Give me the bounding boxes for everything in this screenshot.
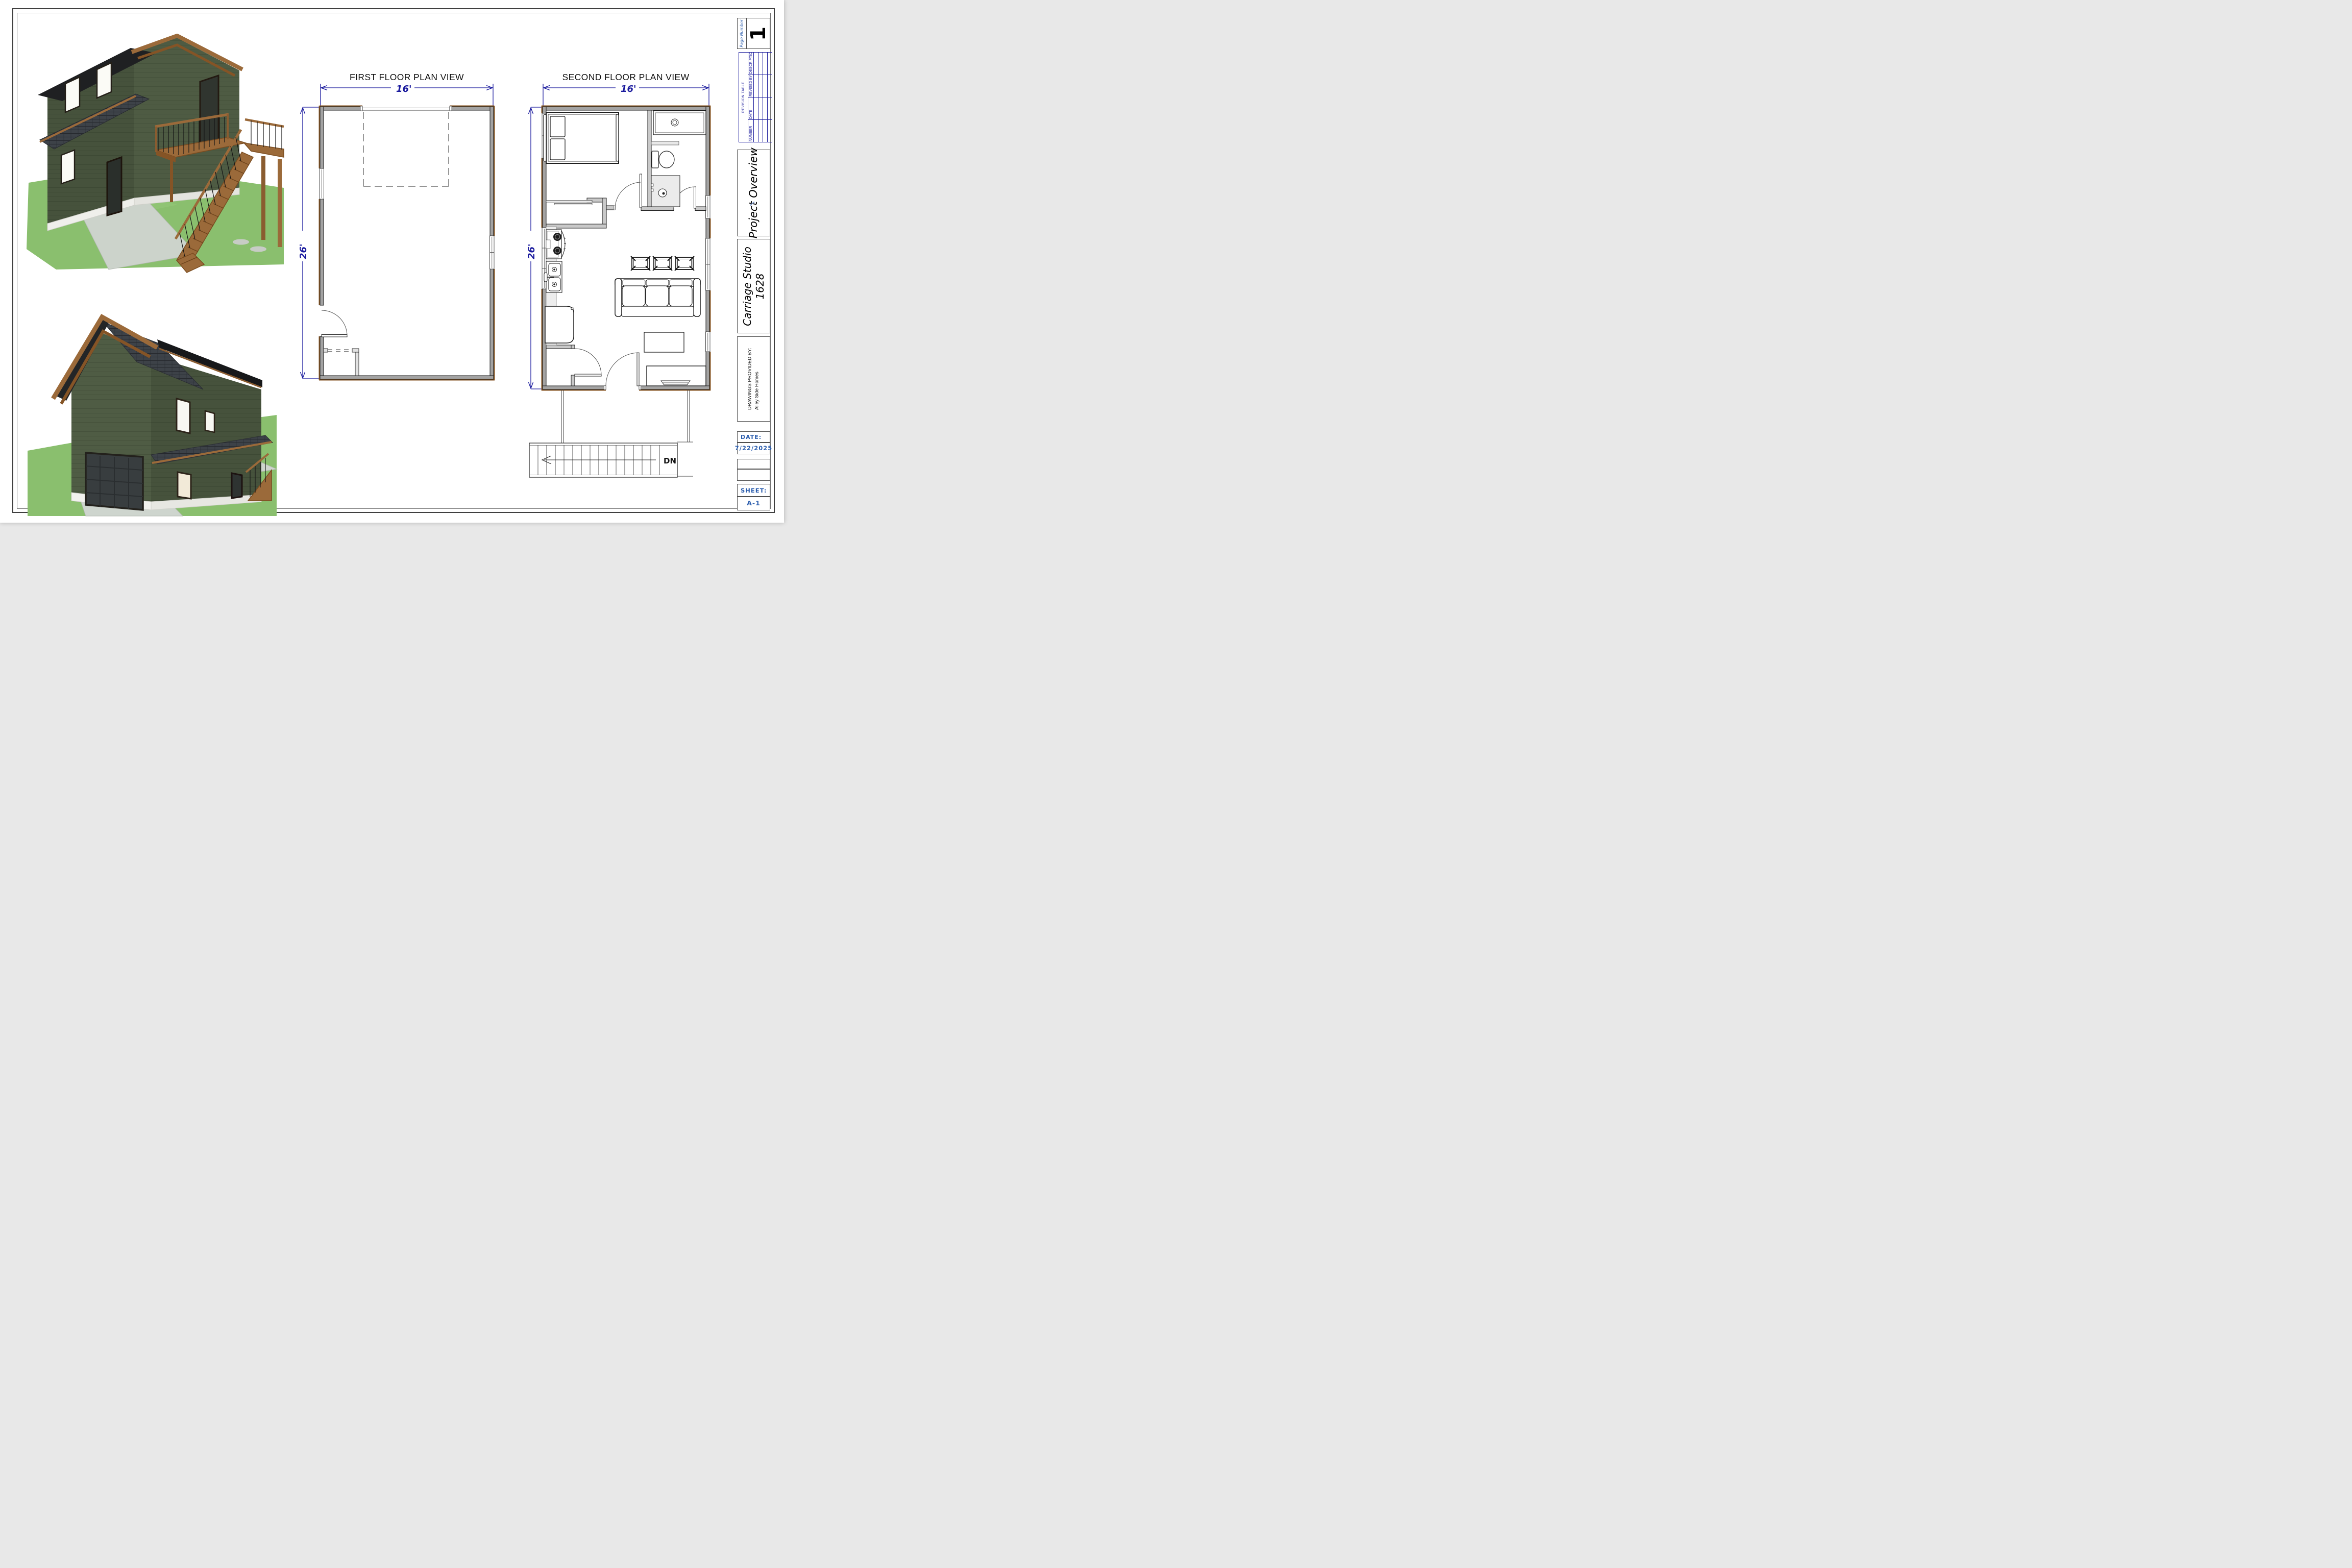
revision-table-title: REVISION TABLE bbox=[739, 53, 748, 142]
window-upper-small bbox=[205, 411, 214, 432]
dim-label-26ft: 26' bbox=[298, 243, 309, 259]
plan-number: 1628 bbox=[754, 247, 767, 326]
plan-name-box: Carriage Studio 1628 bbox=[737, 239, 770, 333]
sheet-box: SHEET: A-1 bbox=[737, 484, 770, 510]
window-upper-2 bbox=[97, 63, 111, 98]
door-jamb bbox=[639, 386, 641, 390]
toilet bbox=[652, 151, 674, 168]
sheet-value: A-1 bbox=[738, 497, 770, 509]
revision-table: REVISION TABLE NUMBER DATE REVISED BY DE… bbox=[739, 52, 769, 142]
bed bbox=[544, 112, 619, 163]
bedroom-door bbox=[615, 174, 642, 209]
project-title-box: Project Overview bbox=[737, 150, 770, 236]
side-tables bbox=[631, 256, 694, 271]
garage-door-symbol bbox=[360, 106, 452, 186]
date-label: DATE: bbox=[738, 432, 770, 443]
dim-label-26ft: 26' bbox=[526, 243, 537, 259]
sofa bbox=[615, 279, 700, 316]
stair-landing bbox=[244, 143, 284, 157]
rev-col-revisedby: REVISED BY bbox=[748, 75, 754, 97]
vanity bbox=[653, 111, 706, 135]
page-number-label: Page Number bbox=[740, 19, 744, 47]
provided-by-value: Alley Side Homes bbox=[754, 348, 761, 410]
coffee-table bbox=[644, 332, 684, 352]
page-number-value: 1 bbox=[747, 27, 770, 41]
exterior-siding-line bbox=[319, 106, 495, 380]
dim-label-16ft: 16' bbox=[621, 84, 636, 94]
window-lower bbox=[178, 472, 191, 499]
interior-closet bbox=[324, 349, 359, 376]
empty-box bbox=[737, 459, 770, 481]
entry-door bbox=[107, 157, 121, 215]
entry-door-symbol bbox=[322, 310, 347, 337]
project-title: Project Overview bbox=[748, 148, 760, 238]
dimension-height bbox=[301, 107, 320, 379]
exterior-rendering-rear bbox=[24, 34, 290, 281]
window-right bbox=[490, 236, 495, 269]
desk bbox=[647, 366, 706, 386]
sheet-label: SHEET: bbox=[738, 484, 770, 497]
rev-col-description: DESCRIPTION bbox=[748, 53, 754, 75]
concrete-pad bbox=[250, 247, 266, 252]
rev-col-date: DATE bbox=[748, 97, 754, 120]
window-left bbox=[320, 168, 324, 199]
shower bbox=[651, 176, 680, 207]
closet-shelf bbox=[546, 201, 592, 205]
exterior-rendering-front bbox=[26, 282, 281, 518]
second-floor-plan: 16' 26' bbox=[514, 69, 729, 485]
refrigerator bbox=[545, 306, 574, 343]
rev-col-number: NUMBER bbox=[748, 120, 754, 142]
plan-name: Carriage Studio bbox=[741, 247, 754, 326]
kitchen-sink bbox=[544, 261, 562, 292]
side-entry-door bbox=[232, 473, 242, 498]
provided-by-box: DRAWINGS PROVIDED BY: Alley Side Homes bbox=[737, 336, 770, 422]
window-lower bbox=[61, 150, 75, 184]
page-number-box: Page Number 1 bbox=[737, 18, 770, 49]
first-floor-plan: 16' 26' bbox=[283, 69, 508, 388]
door-jamb bbox=[604, 386, 606, 390]
date-box: DATE: 7/22/2025 bbox=[737, 431, 770, 454]
concrete-pad bbox=[233, 239, 249, 245]
drawing-sheet: FIRST FLOOR PLAN VIEW SECOND FLOOR PLAN … bbox=[0, 0, 784, 523]
stair-down-label: DN bbox=[664, 456, 676, 465]
window-upper-1 bbox=[65, 77, 80, 112]
deck-entry-door bbox=[606, 353, 639, 386]
bath-shelf bbox=[651, 141, 679, 145]
provided-by-label: DRAWINGS PROVIDED BY: bbox=[746, 348, 753, 410]
window-upper-large bbox=[177, 399, 190, 433]
dim-label-16ft: 16' bbox=[396, 84, 412, 94]
range bbox=[546, 230, 566, 259]
hall-closet-door bbox=[575, 349, 601, 376]
date-value: 7/22/2025 bbox=[738, 443, 770, 453]
exterior-stairs bbox=[529, 443, 677, 477]
exterior-walls bbox=[320, 107, 494, 379]
